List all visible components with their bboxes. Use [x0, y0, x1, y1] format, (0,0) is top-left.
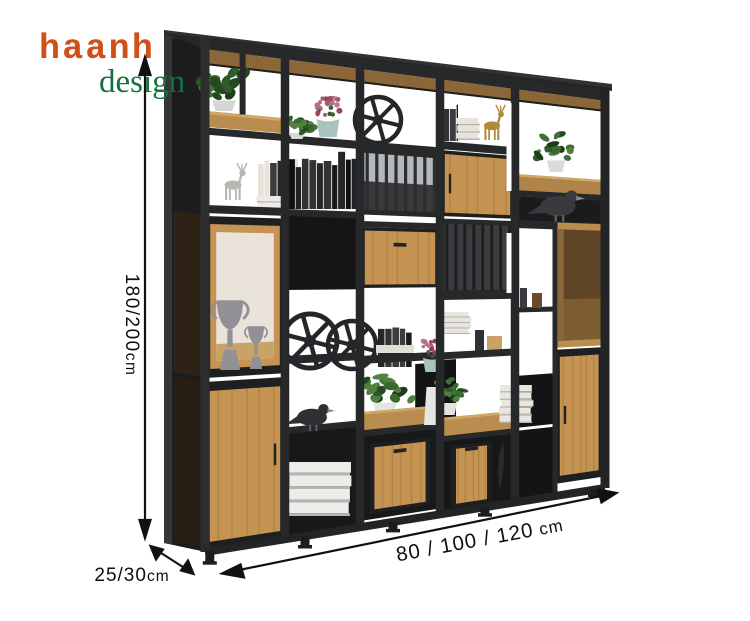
- svg-text:haanh: haanh: [39, 29, 155, 69]
- svg-text:25/30cm: 25/30cm: [94, 565, 169, 586]
- svg-text:180/200cm: 180/200cm: [121, 274, 142, 377]
